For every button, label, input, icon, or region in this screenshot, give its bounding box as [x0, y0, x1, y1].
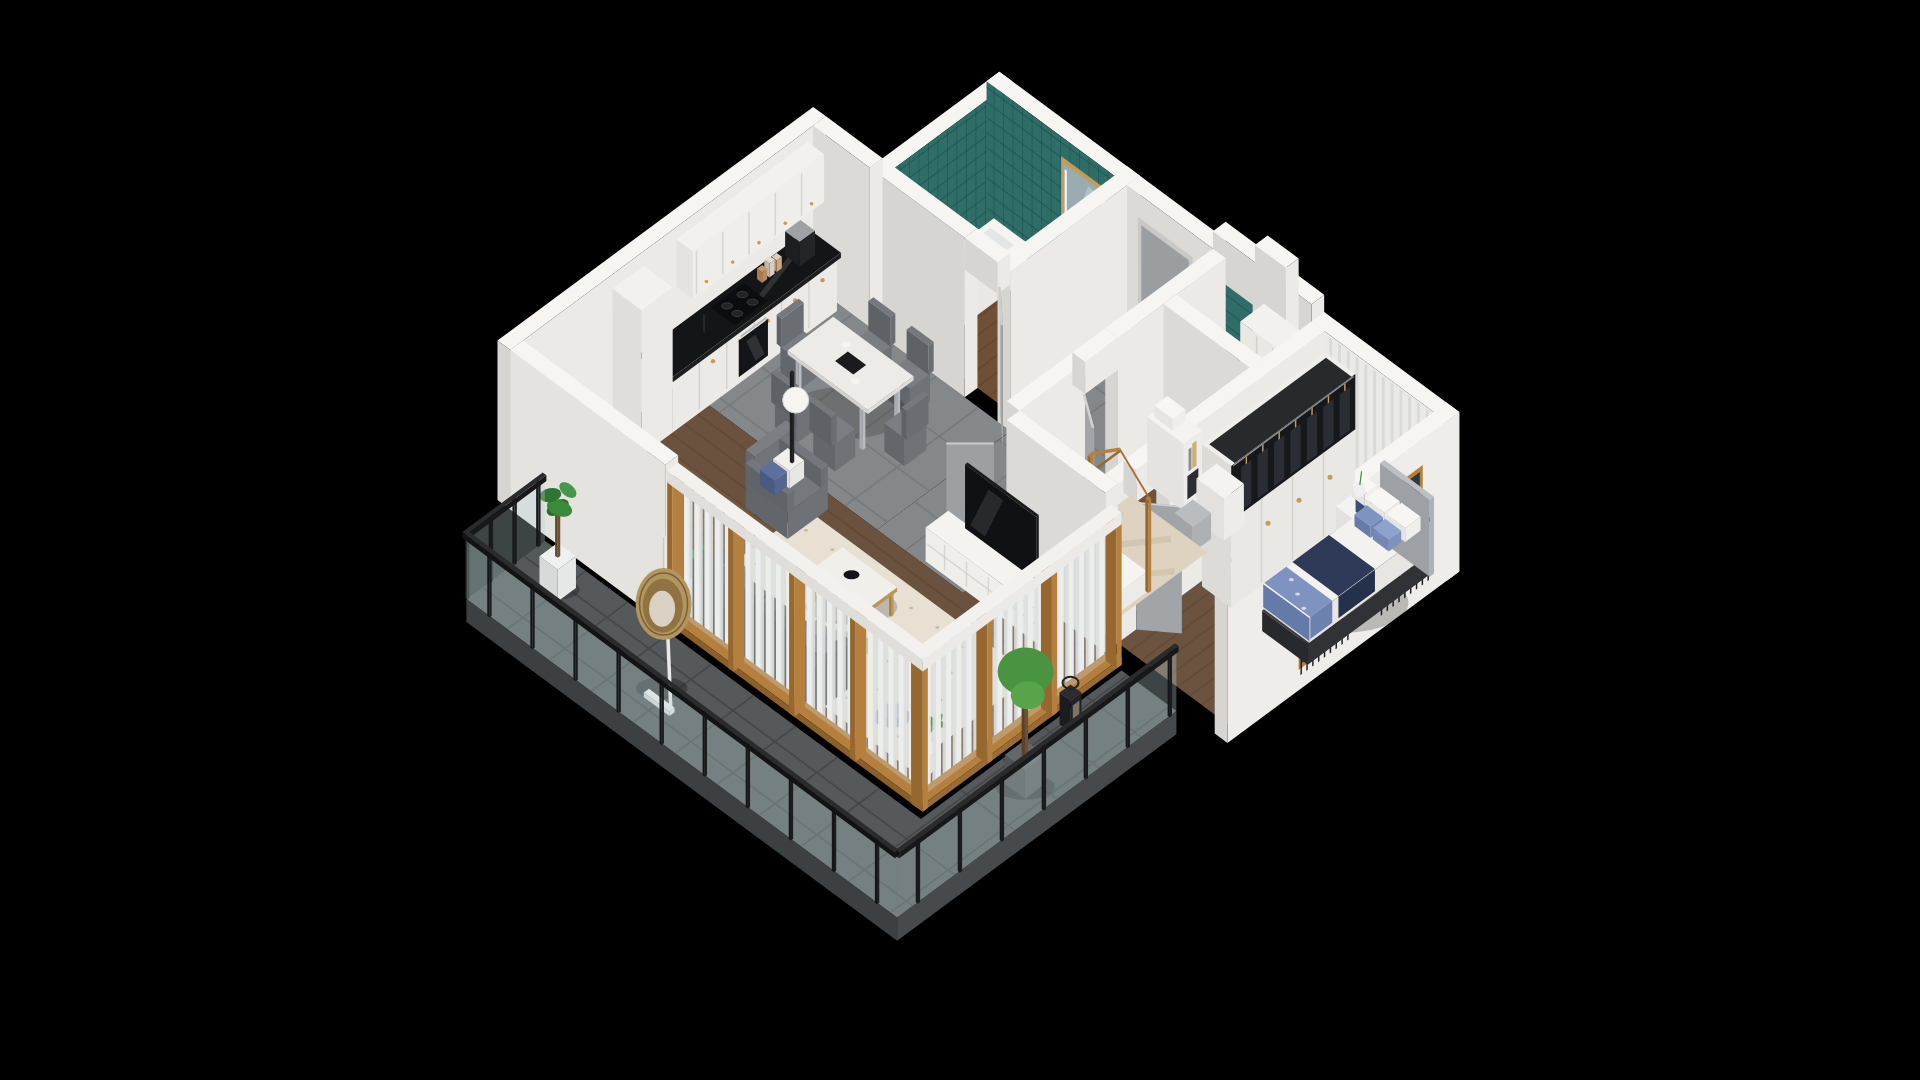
kitchen-west-wall [497, 340, 510, 509]
nightstand-vase [1353, 481, 1365, 497]
cooktop-burner [747, 299, 758, 305]
wardrobe-garment [1340, 387, 1350, 438]
kitchen-cabinet-seam [808, 279, 809, 329]
railing-post-south [530, 584, 532, 649]
upper-cabinet-seam [696, 251, 697, 295]
kitchen-cabinet-knob [711, 359, 715, 363]
railing-post-south [619, 648, 621, 713]
housebed-post [1145, 498, 1148, 593]
coffee-table-leg [891, 592, 893, 617]
railing-post-east [1000, 776, 1002, 841]
wardrobe-seam [1292, 475, 1293, 560]
railing-post-south [832, 807, 834, 872]
wardrobe-garment [1323, 399, 1333, 450]
railing-post-south [616, 648, 618, 713]
dining-chair-back [777, 315, 782, 348]
wardrobe-garment [1258, 448, 1268, 499]
slidingdoor-east-post [987, 618, 992, 764]
shelf-book [1189, 447, 1192, 471]
rug-speckle [935, 626, 939, 629]
railing-post-east [1128, 683, 1130, 748]
wardrobe-hanger [1311, 408, 1312, 416]
wardrobe-garment [1307, 411, 1317, 462]
wardrobe-hanger [1328, 395, 1329, 403]
railing-post-east [958, 807, 960, 872]
upper-cabinet-knob [757, 241, 761, 245]
wardrobe-hanger [1246, 456, 1247, 464]
railing-post-south [703, 711, 705, 776]
slidingdoor-east-post [912, 662, 923, 812]
railing-post-west [515, 499, 517, 564]
cooktop-burner [737, 292, 748, 298]
railing-post-south [748, 743, 750, 808]
hanging-egg-cushion [649, 591, 675, 627]
slidingdoor-post [733, 521, 744, 671]
upper-cabinet-knob [731, 260, 735, 264]
slidingdoor-post [794, 567, 805, 717]
floral-dot [1295, 592, 1300, 595]
dining-cup [851, 378, 860, 384]
hall-door-top-edge [946, 443, 994, 445]
rug-speckle [830, 548, 834, 551]
slidingdoor-east-post [923, 666, 928, 812]
wardrobe-hanger [1344, 383, 1345, 391]
balcony-tree-foliage [1011, 681, 1045, 709]
railing-post-south [834, 807, 836, 872]
slidingdoor-post [850, 616, 855, 762]
kitchen-faucet [703, 314, 705, 334]
wardrobe-hanger [1295, 420, 1296, 428]
slidingdoor-post [855, 612, 866, 762]
shelf-book [1192, 440, 1196, 468]
cooktop-burner [722, 303, 733, 309]
railing-post-east [1042, 745, 1044, 810]
railing-post-south [791, 775, 793, 840]
slidingdoor-east-post [1117, 523, 1122, 669]
kitchen-cabinet-seam [699, 360, 700, 410]
upper-cabinet-knob [705, 280, 709, 284]
railing-post-south [573, 616, 575, 681]
upper-cabinet-knob [810, 202, 814, 206]
railing-post-east [1170, 652, 1172, 717]
coffee-table-decor [844, 570, 860, 579]
wardrobe-seam [1323, 452, 1324, 537]
railing-post-east [1168, 652, 1170, 717]
wardrobe-knob [1297, 498, 1302, 503]
balcony-fig-trunk [555, 510, 558, 558]
railing-post-east [916, 838, 918, 903]
railing-post-east [960, 807, 962, 872]
slidingdoor-east-post [1052, 570, 1057, 716]
railing-post-west [512, 499, 514, 564]
railing-post-south [533, 584, 535, 649]
floral-dot [1289, 578, 1294, 581]
railing-post-south [660, 680, 662, 745]
floor-plan-svg [0, 0, 1920, 1080]
railing-post-east [1126, 683, 1128, 748]
wardrobe-knob [1265, 521, 1270, 526]
railing-post-east [1002, 776, 1004, 841]
railing-post-south [875, 839, 877, 904]
wardrobe-hanger [1262, 444, 1263, 452]
kitchen-pantry [642, 287, 673, 455]
railing-post-south [487, 552, 489, 617]
upper-cabinet-knob [783, 221, 787, 225]
railing-post-east [918, 838, 920, 903]
cooktop-burner [732, 310, 743, 316]
dining-table-leg [860, 403, 863, 450]
wardrobe-seam [1261, 498, 1262, 583]
bed-headboard [1430, 497, 1434, 577]
dining-chair-back [890, 314, 895, 347]
rug-speckle [804, 529, 808, 532]
wardrobe-knob [1328, 475, 1333, 480]
slidingdoor-post [728, 526, 733, 672]
floor-lamp-globe [783, 387, 809, 413]
mirror-sconce [1065, 169, 1067, 217]
slidingdoor-east-post [976, 614, 987, 764]
slidingdoor-post [789, 571, 794, 717]
floral-dot [1301, 607, 1306, 610]
balcony-tree-trunk [1022, 703, 1025, 758]
balcony-fig-trunk [558, 510, 561, 558]
dining-chair-back [902, 407, 907, 440]
railing-post-south [705, 711, 707, 776]
railing-post-south [746, 743, 748, 808]
wardrobe-garment [1290, 423, 1300, 474]
railing-post-east [1084, 714, 1086, 779]
floor-lamp-pole [790, 372, 792, 464]
dining-chair-back [831, 414, 836, 447]
dining-chair-back [929, 342, 934, 375]
upper-cabinet-seam [801, 173, 802, 217]
apartment-3d-floor-plan [0, 0, 1920, 1080]
kitchen-cabinet-knob [820, 278, 824, 282]
railing-post-east [1044, 745, 1046, 810]
upper-cabinet-seam [775, 192, 776, 236]
railing-post-south [789, 775, 791, 840]
wardrobe-garment [1274, 436, 1284, 487]
housebed-post [1148, 498, 1151, 593]
kitchen-cabinet-seam [726, 340, 727, 390]
upper-cabinet-seam [722, 231, 723, 275]
railing-post-east [1086, 714, 1088, 779]
railing-post-south [489, 552, 491, 617]
floor-lamp-pole [792, 372, 794, 464]
rug-speckle [909, 607, 913, 610]
slidingdoor-east-post [1106, 518, 1117, 668]
railing-post-west [536, 482, 538, 547]
railing-post-west [538, 482, 540, 547]
upper-cabinet-seam [748, 212, 749, 256]
balcony-tree-trunk [1025, 703, 1028, 758]
dining-cup [842, 342, 851, 348]
railing-post-south [877, 839, 879, 904]
railing-post-south [576, 616, 578, 681]
railing-post-south [662, 680, 664, 745]
wardrobe-hanger [1278, 432, 1279, 440]
